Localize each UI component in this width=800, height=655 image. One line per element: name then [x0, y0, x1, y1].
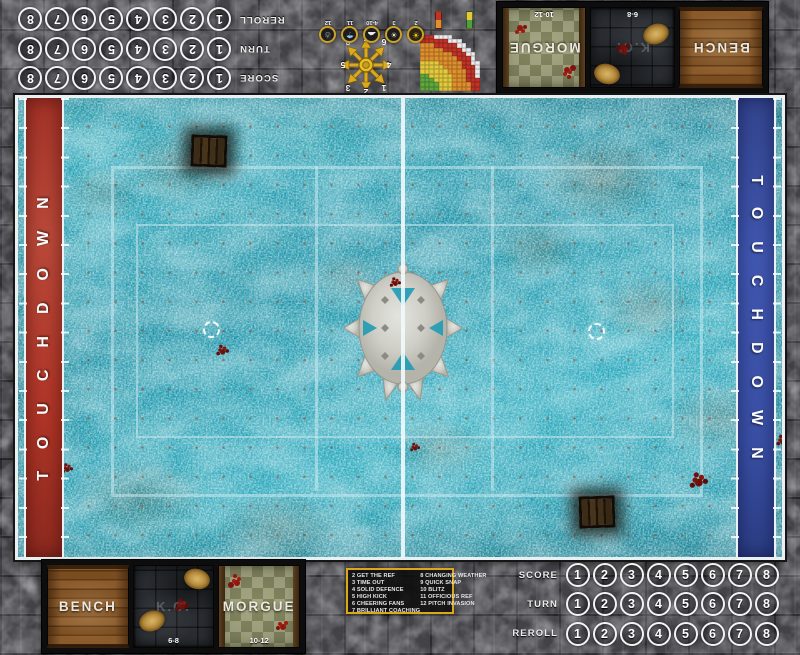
line-of-scrimmage — [401, 98, 405, 557]
td-zone-left: TOUCHDOWN — [24, 98, 64, 557]
range-cell — [434, 56, 439, 60]
range-cell — [462, 61, 467, 65]
range-cell — [448, 56, 453, 60]
tracker-circle-reroll-6[interactable]: 6 — [701, 622, 725, 646]
range-cell — [462, 52, 467, 56]
range-cell — [425, 69, 430, 73]
range-cell — [439, 87, 444, 91]
tracker-circle-turn-4[interactable]: 4 — [127, 37, 151, 61]
morgue-panel: MORGUE10-12 — [502, 7, 586, 88]
range-cell — [471, 52, 476, 56]
tracker-row-turn: TURN12345678 — [512, 591, 780, 617]
tracker-circle-score-5[interactable]: 5 — [100, 66, 124, 90]
tracker-circle-reroll-2[interactable]: 2 — [181, 7, 205, 31]
tracker-label: REROLL — [512, 628, 558, 639]
tracker-circle-reroll-4[interactable]: 4 — [647, 622, 671, 646]
range-cell — [429, 56, 434, 60]
tracker-circle-reroll-7[interactable]: 7 — [728, 622, 752, 646]
cloud-icon: ☁ — [364, 26, 381, 43]
blood-splatter — [218, 348, 222, 352]
range-cell — [443, 48, 448, 52]
range-cell — [452, 69, 457, 73]
hay-bale-icon — [182, 566, 212, 592]
tracker-label: TURN — [512, 599, 558, 610]
kickoff-entry: 9 QUICK SNAP — [420, 580, 486, 587]
range-cell — [462, 82, 467, 86]
tracker-circle-reroll-5[interactable]: 5 — [674, 622, 698, 646]
range-cell — [443, 65, 448, 69]
tracker-circle-reroll-6[interactable]: 6 — [73, 7, 97, 31]
range-cell — [457, 48, 462, 52]
kickoff-entry: 10 BLITZ — [420, 587, 486, 594]
range-cell — [475, 43, 480, 47]
range-cell — [466, 52, 471, 56]
tracker-circle-reroll-1[interactable]: 1 — [208, 7, 232, 31]
grid-ticks — [773, 98, 781, 557]
range-cell — [471, 78, 476, 82]
tracker-circle-score-4[interactable]: 4 — [127, 66, 151, 90]
weather-value: 4-10 — [366, 19, 378, 25]
range-cell — [471, 69, 476, 73]
dugout-home: BENCHK.O.6-8MORGUE10-12 — [42, 560, 305, 653]
range-cell — [439, 82, 444, 86]
tracker-circle-turn-4[interactable]: 4 — [647, 592, 671, 616]
tracker-circle-reroll-2[interactable]: 2 — [593, 622, 617, 646]
tracker-row-reroll: REROLL12345678 — [512, 621, 780, 647]
tracker-row-turn: TURN12345678 — [17, 36, 285, 62]
range-cell — [425, 48, 430, 52]
range-cell — [457, 61, 462, 65]
tracker-circle-score-7[interactable]: 7 — [46, 66, 70, 90]
kickoff-entry: 7 BRILLIANT COACHING — [352, 608, 420, 615]
kickoff-column-left: 2 GET THE REF3 TIME OUT4 SOLID DEFENCE5 … — [352, 573, 420, 609]
range-cell — [434, 43, 439, 47]
range-cell — [443, 39, 448, 43]
range-cell — [466, 78, 471, 82]
blood-splatter — [278, 622, 282, 626]
sun-icon: ☀ — [408, 26, 425, 43]
td-zone-right: TOUCHDOWN — [736, 98, 776, 557]
tracker-circle-score-6[interactable]: 6 — [73, 66, 97, 90]
range-cell — [439, 74, 444, 78]
range-cell — [425, 87, 430, 91]
bench-panel: BENCH — [679, 7, 763, 88]
weather-value: 11 — [347, 19, 353, 25]
range-cell — [429, 48, 434, 52]
kickoff-entry: 12 PITCH INVASION — [420, 601, 486, 608]
range-cell — [434, 61, 439, 65]
grid-ticks — [731, 98, 739, 557]
morgue-range-label: 10-12 — [219, 636, 299, 645]
tracker-circle-turn-7[interactable]: 7 — [728, 592, 752, 616]
range-cell — [452, 87, 457, 91]
range-cell — [471, 87, 476, 91]
range-cell — [429, 74, 434, 78]
score-tracker-opponent: SCORE12345678TURN12345678REROLL12345678 — [17, 3, 285, 91]
tracker-circle-reroll-7[interactable]: 7 — [46, 7, 70, 31]
range-cell — [457, 43, 462, 47]
tracker-circle-turn-6[interactable]: 6 — [701, 592, 725, 616]
weather-entry-3[interactable]: ☀3 — [384, 19, 404, 43]
range-cell — [448, 74, 453, 78]
ko-label: K.O. — [615, 40, 650, 55]
tracker-circle-turn-2[interactable]: 2 — [181, 37, 205, 61]
tracker-circle-reroll-1[interactable]: 1 — [566, 622, 590, 646]
range-cell — [452, 61, 457, 65]
zone-line-right — [491, 166, 494, 491]
kickoff-entry: 2 GET THE REF — [352, 573, 420, 580]
range-cell — [425, 82, 430, 86]
range-cell — [457, 82, 462, 86]
tracker-circle-score-2[interactable]: 2 — [181, 66, 205, 90]
weather-value: 3 — [392, 19, 395, 25]
tracker-circle-turn-6[interactable]: 6 — [73, 37, 97, 61]
range-cell — [420, 52, 425, 56]
tracker-circle-turn-8[interactable]: 8 — [19, 37, 43, 61]
range-cell — [439, 56, 444, 60]
range-cell — [448, 87, 453, 91]
range-cell — [439, 65, 444, 69]
tracker-circle-score-2[interactable]: 2 — [593, 563, 617, 587]
blood-splatter — [391, 280, 394, 283]
range-cell — [425, 65, 430, 69]
range-cell — [425, 52, 430, 56]
morgue-panel: MORGUE10-12 — [218, 565, 300, 648]
range-cell — [452, 48, 457, 52]
tracker-circle-turn-2[interactable]: 2 — [593, 592, 617, 616]
tracker-circle-turn-3[interactable]: 3 — [154, 37, 178, 61]
tracker-circle-reroll-8[interactable]: 8 — [755, 622, 779, 646]
range-cell — [443, 43, 448, 47]
range-cell — [475, 65, 480, 69]
range-cell — [443, 56, 448, 60]
compass-number-3: 3 — [346, 83, 351, 93]
range-cell — [439, 39, 444, 43]
range-cell — [429, 52, 434, 56]
tracker-row-score: SCORE12345678 — [17, 65, 285, 91]
weather-entry-11[interactable]: ☂11 — [340, 19, 360, 43]
range-cell — [434, 69, 439, 73]
range-cell — [434, 78, 439, 82]
range-cell — [425, 61, 430, 65]
kickoff-entry: 8 CHANGING WEATHER — [420, 573, 486, 580]
weather-value: 12 — [325, 19, 331, 25]
range-cell — [420, 87, 425, 91]
game-tools-panel: 12345678 ☀2☀3☁4-10☂11☃12 — [300, 0, 500, 95]
range-cell — [439, 69, 444, 73]
range-cell — [475, 87, 480, 91]
range-cell — [471, 65, 476, 69]
tracker-circle-score-1[interactable]: 1 — [566, 563, 590, 587]
range-cell — [471, 56, 476, 60]
range-cell — [466, 48, 471, 52]
range-cell — [457, 74, 462, 78]
range-cell — [448, 78, 453, 82]
range-cell — [448, 39, 453, 43]
tracker-circle-reroll-4[interactable]: 4 — [127, 7, 151, 31]
hay-bale-icon — [592, 61, 622, 87]
range-cell — [420, 82, 425, 86]
tracker-circle-score-8[interactable]: 8 — [19, 66, 43, 90]
range-cell — [420, 69, 425, 73]
range-cell — [475, 39, 480, 43]
range-cell — [439, 43, 444, 47]
touchdown-text-right: TOUCHDOWN — [747, 175, 765, 480]
range-cell — [443, 35, 448, 39]
range-cell — [466, 65, 471, 69]
range-cell — [462, 48, 467, 52]
range-cell — [429, 69, 434, 73]
weather-entry-4-10[interactable]: ☁4-10 — [362, 19, 382, 43]
range-cell — [457, 87, 462, 91]
tracker-circle-score-1[interactable]: 1 — [208, 66, 232, 90]
tracker-circle-score-3[interactable]: 3 — [154, 66, 178, 90]
bench-panel: BENCH — [47, 565, 129, 648]
kickoff-table: 2 GET THE REF3 TIME OUT4 SOLID DEFENCE5 … — [346, 568, 454, 614]
range-cell — [429, 82, 434, 86]
ko-panel: K.O.6-8 — [133, 565, 215, 648]
range-cell — [471, 39, 476, 43]
weather-track: ☀2☀3☁4-10☂11☃12 — [318, 19, 426, 43]
kickoff-entry: 5 HIGH KICK — [352, 594, 420, 601]
game-board-mat: BENCHK.O.6-8MORGUE10-12 12345678 ☀2☀3☁4-… — [0, 0, 800, 655]
tracker-circle-turn-5[interactable]: 5 — [100, 37, 124, 61]
range-cell — [471, 82, 476, 86]
range-cell — [439, 48, 444, 52]
morgue-label: MORGUE — [223, 599, 296, 614]
tracker-circle-reroll-8[interactable]: 8 — [19, 7, 43, 31]
blood-splatter — [232, 579, 236, 583]
range-cell — [466, 39, 471, 43]
range-cell — [439, 52, 444, 56]
range-cell — [452, 65, 457, 69]
ko-range-label: 6-8 — [591, 10, 673, 19]
range-cell — [429, 39, 434, 43]
range-cell — [452, 56, 457, 60]
tracker-circle-turn-7[interactable]: 7 — [46, 37, 70, 61]
compass-number-4: 4 — [387, 60, 392, 70]
range-cell — [425, 43, 430, 47]
bench-label: BENCH — [692, 40, 750, 55]
sun-cloud-icon: ☀ — [386, 26, 403, 43]
trapdoor-grate-icon — [190, 134, 227, 167]
range-cell — [475, 48, 480, 52]
range-cell — [452, 35, 457, 39]
range-cell — [457, 39, 462, 43]
morgue-range-label: 10-12 — [503, 10, 585, 19]
weather-entry-2[interactable]: ☀2 — [406, 19, 426, 43]
scatter-compass: 12345678 — [336, 35, 396, 95]
range-cell — [434, 82, 439, 86]
blood-splatter — [521, 29, 525, 33]
range-cell — [466, 56, 471, 60]
range-cell — [420, 65, 425, 69]
range-cell — [457, 52, 462, 56]
tracker-label: SCORE — [512, 570, 558, 581]
zone-line-left — [315, 166, 318, 491]
tracker-circle-turn-8[interactable]: 8 — [755, 592, 779, 616]
tracker-circle-reroll-5[interactable]: 5 — [100, 7, 124, 31]
compass-number-1: 1 — [382, 83, 387, 93]
score-tracker-home: SCORE12345678TURN12345678REROLL12345678 — [512, 562, 780, 650]
range-cell — [457, 35, 462, 39]
range-cell — [420, 78, 425, 82]
range-cell — [457, 65, 462, 69]
range-cell — [452, 74, 457, 78]
range-cell — [471, 35, 476, 39]
range-cell — [471, 74, 476, 78]
range-cell — [475, 69, 480, 73]
range-cell — [420, 61, 425, 65]
range-cell — [475, 56, 480, 60]
range-cell — [466, 61, 471, 65]
range-cell — [434, 48, 439, 52]
range-cell — [475, 52, 480, 56]
range-cell — [457, 78, 462, 82]
range-legend-bar — [435, 11, 442, 29]
pitch: TOUCHDOWN TOUCHDOWN — [15, 95, 785, 560]
top-band-opponent-side: BENCHK.O.6-8MORGUE10-12 12345678 ☀2☀3☁4-… — [0, 0, 800, 95]
kickoff-entry: 11 OFFICIOUS REF — [420, 594, 486, 601]
range-cell — [471, 61, 476, 65]
ko-panel: K.O.6-8 — [590, 7, 674, 88]
tracker-circle-reroll-3[interactable]: 3 — [154, 7, 178, 31]
range-cell — [462, 43, 467, 47]
compass-number-5: 5 — [341, 60, 346, 70]
range-cell — [475, 61, 480, 65]
range-cell — [462, 87, 467, 91]
range-cell — [457, 56, 462, 60]
range-cell — [475, 74, 480, 78]
tracker-circle-score-4[interactable]: 4 — [647, 563, 671, 587]
tracker-circle-turn-3[interactable]: 3 — [620, 592, 644, 616]
range-cell — [466, 74, 471, 78]
range-cell — [425, 78, 430, 82]
weather-value: 2 — [414, 19, 417, 25]
range-cell — [466, 69, 471, 73]
range-cell — [443, 82, 448, 86]
tracker-circle-turn-1[interactable]: 1 — [208, 37, 232, 61]
snow-icon: ☃ — [320, 26, 337, 43]
tracker-circle-turn-1[interactable]: 1 — [566, 592, 590, 616]
range-cell — [475, 78, 480, 82]
range-cell — [420, 56, 425, 60]
range-cell — [466, 87, 471, 91]
range-cell — [443, 52, 448, 56]
range-cell — [434, 74, 439, 78]
range-cell — [475, 82, 480, 86]
tracker-label: TURN — [239, 43, 285, 54]
kickoff-entry: 6 CHEERING FANS — [352, 601, 420, 608]
range-cell — [425, 74, 430, 78]
kickoff-column-right: 8 CHANGING WEATHER9 QUICK SNAP10 BLITZ11… — [420, 573, 486, 609]
range-cell — [466, 35, 471, 39]
range-legend-bar — [466, 11, 473, 29]
range-cell — [452, 52, 457, 56]
range-cell — [475, 35, 480, 39]
range-cell — [434, 39, 439, 43]
range-cell — [448, 35, 453, 39]
range-cell — [448, 43, 453, 47]
range-cell — [443, 78, 448, 82]
range-cell — [429, 87, 434, 91]
ko-range-label: 6-8 — [134, 636, 214, 645]
tracker-row-score: SCORE12345678 — [512, 562, 780, 588]
range-cell — [429, 78, 434, 82]
weather-entry-12[interactable]: ☃12 — [318, 19, 338, 43]
tracker-circle-turn-5[interactable]: 5 — [674, 592, 698, 616]
range-cell — [439, 78, 444, 82]
tracker-label: REROLL — [239, 14, 285, 25]
morgue-label: MORGUE — [508, 40, 581, 55]
range-cell — [425, 56, 430, 60]
range-cell — [452, 78, 457, 82]
blood-splatter — [568, 70, 572, 74]
range-cell — [420, 74, 425, 78]
range-cell — [420, 48, 425, 52]
range-cell — [452, 43, 457, 47]
range-cell — [452, 82, 457, 86]
blood-splatter — [412, 446, 415, 449]
range-cell — [434, 87, 439, 91]
range-cell — [448, 52, 453, 56]
range-cell — [448, 82, 453, 86]
range-cell — [434, 52, 439, 56]
tracker-circle-score-8[interactable]: 8 — [755, 563, 779, 587]
grid-ticks — [19, 98, 27, 557]
range-cell — [443, 87, 448, 91]
range-cell — [471, 43, 476, 47]
range-cell — [434, 65, 439, 69]
range-cell — [462, 56, 467, 60]
range-cell — [420, 43, 425, 47]
range-cell — [448, 48, 453, 52]
range-cell — [434, 35, 439, 39]
range-cell — [429, 35, 434, 39]
range-cell — [429, 43, 434, 47]
range-cell — [443, 69, 448, 73]
tracker-circle-score-7[interactable]: 7 — [728, 563, 752, 587]
range-cell — [471, 48, 476, 52]
grid-ticks — [61, 98, 69, 557]
range-cell — [462, 35, 467, 39]
trapdoor-grate-icon — [578, 495, 615, 528]
range-cell — [462, 65, 467, 69]
range-cell — [443, 74, 448, 78]
tracker-circle-reroll-3[interactable]: 3 — [620, 622, 644, 646]
range-cell — [462, 74, 467, 78]
range-ruler-chart — [420, 35, 480, 91]
kickoff-entry: 4 SOLID DEFENCE — [352, 587, 420, 594]
bench-label: BENCH — [59, 599, 117, 614]
tracker-label: SCORE — [239, 73, 285, 84]
range-cell — [448, 61, 453, 65]
blood-splatter — [692, 477, 697, 482]
range-cell — [466, 82, 471, 86]
range-cell — [462, 78, 467, 82]
range-cell — [462, 69, 467, 73]
tracker-circle-score-3[interactable]: 3 — [620, 563, 644, 587]
range-cell — [457, 69, 462, 73]
range-cell — [466, 43, 471, 47]
tracker-row-reroll: REROLL12345678 — [17, 6, 285, 32]
range-cell — [443, 61, 448, 65]
rain-icon: ☂ — [342, 26, 359, 43]
tracker-circle-score-6[interactable]: 6 — [701, 563, 725, 587]
range-cell — [439, 35, 444, 39]
tracker-circle-score-5[interactable]: 5 — [674, 563, 698, 587]
range-cell — [429, 65, 434, 69]
